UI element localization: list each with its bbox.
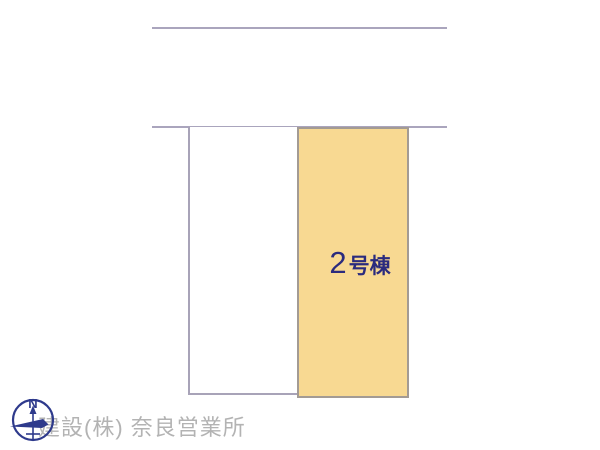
lot-2-parcel: 2号棟	[297, 127, 409, 398]
company-watermark-text: 建設(株) 奈良営業所	[38, 410, 246, 442]
lot-2-number: 2	[329, 245, 346, 280]
compass-dart	[10, 419, 49, 428]
lot-2-suffix: 号棟	[349, 255, 391, 278]
compass-north-icon: N	[9, 393, 57, 445]
site-plan-canvas: 2号棟 建設(株) 奈良営業所 N	[0, 0, 600, 450]
adjacent-lot	[188, 127, 298, 395]
road-edge-line-top	[152, 27, 447, 29]
lot-2-label: 2号棟	[329, 247, 390, 278]
